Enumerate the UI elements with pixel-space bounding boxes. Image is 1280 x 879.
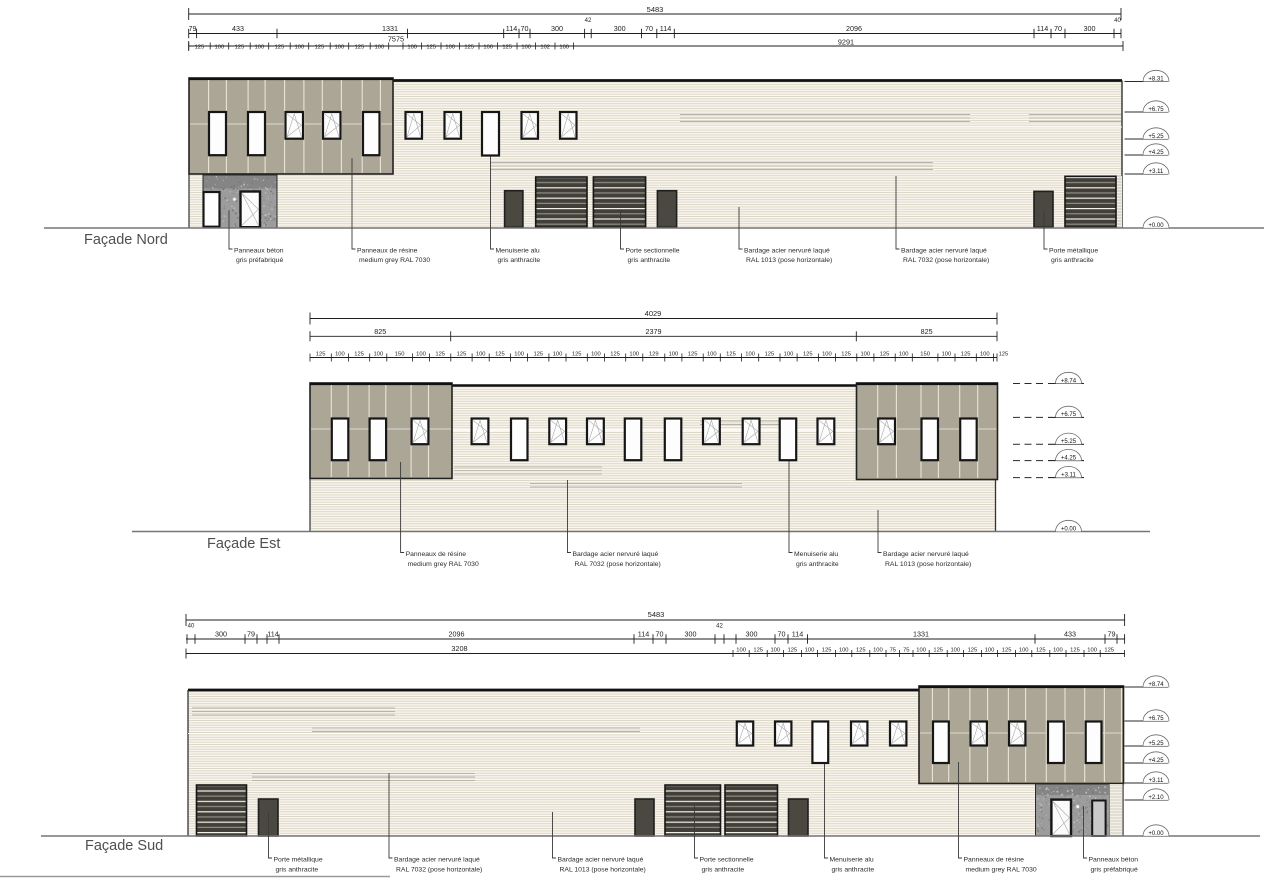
svg-text:70: 70 xyxy=(1054,24,1062,33)
svg-text:5483: 5483 xyxy=(647,5,664,14)
svg-text:125: 125 xyxy=(235,45,245,51)
svg-text:RAL 1013 (pose horizontale): RAL 1013 (pose horizontale) xyxy=(560,867,646,874)
svg-text:114: 114 xyxy=(267,630,278,639)
svg-text:100: 100 xyxy=(559,45,569,51)
svg-text:79: 79 xyxy=(189,24,197,33)
svg-text:100: 100 xyxy=(899,351,909,357)
svg-text:40: 40 xyxy=(188,624,195,630)
svg-text:125: 125 xyxy=(426,45,436,51)
svg-text:125: 125 xyxy=(961,351,971,357)
svg-text:100: 100 xyxy=(553,351,563,357)
svg-text:100: 100 xyxy=(1053,648,1063,654)
svg-text:79: 79 xyxy=(247,630,255,639)
svg-text:125: 125 xyxy=(753,648,763,654)
svg-text:+0.00: +0.00 xyxy=(1148,831,1164,837)
svg-text:125: 125 xyxy=(968,648,978,654)
svg-text:gris anthracite: gris anthracite xyxy=(276,867,319,874)
svg-text:125: 125 xyxy=(495,351,505,357)
svg-text:125: 125 xyxy=(502,45,512,51)
svg-text:100: 100 xyxy=(416,351,426,357)
svg-text:100: 100 xyxy=(591,351,601,357)
svg-text:300: 300 xyxy=(614,24,626,33)
svg-text:433: 433 xyxy=(1064,630,1076,639)
svg-text:100: 100 xyxy=(215,45,225,51)
svg-text:70: 70 xyxy=(778,630,786,639)
svg-text:1331: 1331 xyxy=(913,630,929,639)
svg-text:100: 100 xyxy=(770,648,780,654)
svg-text:Porte sectionnelle: Porte sectionnelle xyxy=(626,248,680,255)
svg-text:+6.75: +6.75 xyxy=(1148,107,1164,113)
svg-text:RAL 7032 (pose horizontale): RAL 7032 (pose horizontale) xyxy=(396,867,482,874)
svg-text:100: 100 xyxy=(255,45,265,51)
svg-text:150: 150 xyxy=(395,351,405,357)
svg-text:70: 70 xyxy=(656,630,664,639)
svg-text:102: 102 xyxy=(540,45,550,51)
svg-text:42: 42 xyxy=(716,624,723,630)
svg-text:gris préfabriqué: gris préfabriqué xyxy=(1091,867,1138,874)
svg-text:100: 100 xyxy=(980,351,990,357)
svg-text:42: 42 xyxy=(585,18,592,24)
svg-text:2096: 2096 xyxy=(449,630,465,639)
svg-text:100: 100 xyxy=(805,648,815,654)
svg-text:100: 100 xyxy=(950,648,960,654)
svg-text:Porte sectionnelle: Porte sectionnelle xyxy=(700,857,754,864)
svg-text:70: 70 xyxy=(521,24,529,33)
svg-text:125: 125 xyxy=(1036,648,1046,654)
svg-text:gris anthracite: gris anthracite xyxy=(796,561,839,568)
svg-text:Façade Nord: Façade Nord xyxy=(84,232,168,248)
svg-text:Façade Sud: Façade Sud xyxy=(85,838,163,854)
svg-text:100: 100 xyxy=(745,351,755,357)
svg-text:100: 100 xyxy=(335,45,345,51)
svg-text:+5.25: +5.25 xyxy=(1148,741,1164,747)
svg-text:100: 100 xyxy=(295,45,305,51)
svg-text:100: 100 xyxy=(629,351,639,357)
svg-text:125: 125 xyxy=(195,45,205,51)
svg-text:Bardage acier nervuré laqué: Bardage acier nervuré laqué xyxy=(394,857,480,864)
svg-text:Panneaux béton: Panneaux béton xyxy=(1089,857,1139,864)
svg-text:Bardage acier nervuré laqué: Bardage acier nervuré laqué xyxy=(901,248,987,255)
svg-text:100: 100 xyxy=(476,351,486,357)
svg-text:2096: 2096 xyxy=(846,24,862,33)
svg-text:40: 40 xyxy=(1114,18,1121,24)
svg-text:100: 100 xyxy=(873,648,883,654)
svg-text:Bardage acier nervuré laqué: Bardage acier nervuré laqué xyxy=(558,857,644,864)
svg-text:129: 129 xyxy=(649,351,659,357)
svg-text:Bardage acier nervuré laqué: Bardage acier nervuré laqué xyxy=(744,248,830,255)
svg-text:825: 825 xyxy=(921,327,933,336)
svg-text:Panneaux de résine: Panneaux de résine xyxy=(406,551,467,558)
svg-text:gris anthracite: gris anthracite xyxy=(498,257,541,264)
svg-text:100: 100 xyxy=(985,648,995,654)
svg-text:+4.25: +4.25 xyxy=(1148,758,1164,764)
svg-text:gris anthracite: gris anthracite xyxy=(832,867,875,874)
svg-text:Menuiserie alu: Menuiserie alu xyxy=(496,248,540,255)
svg-text:114: 114 xyxy=(792,630,803,639)
svg-text:114: 114 xyxy=(506,24,517,33)
svg-text:100: 100 xyxy=(707,351,717,357)
svg-text:433: 433 xyxy=(232,24,244,33)
svg-text:125: 125 xyxy=(765,351,775,357)
svg-text:114: 114 xyxy=(638,630,649,639)
svg-text:+6.75: +6.75 xyxy=(1061,412,1077,418)
svg-text:100: 100 xyxy=(373,351,383,357)
svg-text:gris anthracite: gris anthracite xyxy=(1051,257,1094,264)
svg-text:150: 150 xyxy=(920,351,930,357)
svg-text:114: 114 xyxy=(660,24,671,33)
svg-text:+3.11: +3.11 xyxy=(1149,778,1164,784)
svg-text:125: 125 xyxy=(880,351,890,357)
svg-text:125: 125 xyxy=(788,648,798,654)
svg-text:RAL 1013 (pose horizontale): RAL 1013 (pose horizontale) xyxy=(885,561,971,568)
svg-text:300: 300 xyxy=(551,24,563,33)
svg-text:+5.25: +5.25 xyxy=(1148,134,1164,140)
svg-text:125: 125 xyxy=(856,648,866,654)
svg-text:300: 300 xyxy=(685,630,697,639)
svg-text:79: 79 xyxy=(1108,630,1116,639)
svg-text:125: 125 xyxy=(355,45,365,51)
svg-text:+4.25: +4.25 xyxy=(1148,150,1164,156)
svg-text:3208: 3208 xyxy=(451,644,467,653)
svg-text:Porte métallique: Porte métallique xyxy=(274,857,323,864)
svg-text:125: 125 xyxy=(435,351,445,357)
svg-text:Bardage acier nervuré laqué: Bardage acier nervuré laqué xyxy=(883,551,969,558)
svg-text:gris anthracite: gris anthracite xyxy=(628,257,671,264)
svg-text:100: 100 xyxy=(784,351,794,357)
svg-text:125: 125 xyxy=(315,45,325,51)
svg-text:+8.74: +8.74 xyxy=(1061,378,1077,384)
svg-text:Panneaux de résine: Panneaux de résine xyxy=(357,248,418,255)
svg-text:125: 125 xyxy=(822,648,832,654)
svg-text:medium grey RAL 7030: medium grey RAL 7030 xyxy=(966,867,1037,874)
svg-text:100: 100 xyxy=(822,351,832,357)
svg-text:+0.00: +0.00 xyxy=(1148,223,1164,229)
svg-text:+8.74: +8.74 xyxy=(1148,682,1164,688)
svg-text:100: 100 xyxy=(839,648,849,654)
svg-text:+8.31: +8.31 xyxy=(1148,76,1164,82)
svg-text:+3.11: +3.11 xyxy=(1061,472,1076,478)
svg-text:100: 100 xyxy=(445,45,455,51)
svg-text:300: 300 xyxy=(746,630,758,639)
svg-text:100: 100 xyxy=(514,351,524,357)
svg-text:gris anthracite: gris anthracite xyxy=(702,867,745,874)
svg-text:100: 100 xyxy=(375,45,385,51)
svg-text:gris préfabriqué: gris préfabriqué xyxy=(236,257,283,264)
svg-text:100: 100 xyxy=(942,351,952,357)
svg-text:125: 125 xyxy=(1070,648,1080,654)
svg-text:125: 125 xyxy=(803,351,813,357)
svg-text:RAL 7032 (pose horizontale): RAL 7032 (pose horizontale) xyxy=(575,561,661,568)
svg-text:125: 125 xyxy=(572,351,582,357)
svg-text:125: 125 xyxy=(841,351,851,357)
svg-text:70: 70 xyxy=(645,24,653,33)
svg-text:125: 125 xyxy=(275,45,285,51)
svg-text:100: 100 xyxy=(335,351,345,357)
svg-text:125: 125 xyxy=(457,351,467,357)
svg-text:7575: 7575 xyxy=(388,35,404,44)
svg-text:RAL 1013 (pose horizontale): RAL 1013 (pose horizontale) xyxy=(746,257,832,264)
svg-text:100: 100 xyxy=(483,45,493,51)
svg-text:125: 125 xyxy=(726,351,736,357)
svg-text:100: 100 xyxy=(407,45,417,51)
svg-text:+5.25: +5.25 xyxy=(1061,439,1077,445)
svg-text:2379: 2379 xyxy=(646,327,662,336)
svg-text:75: 75 xyxy=(903,648,909,654)
svg-text:825: 825 xyxy=(374,327,386,336)
svg-text:+3.11: +3.11 xyxy=(1149,169,1164,175)
svg-text:100: 100 xyxy=(1087,648,1097,654)
svg-text:100: 100 xyxy=(916,648,926,654)
svg-text:medium grey RAL 7030: medium grey RAL 7030 xyxy=(408,561,479,568)
svg-text:125: 125 xyxy=(316,351,326,357)
svg-text:125: 125 xyxy=(1002,648,1012,654)
svg-text:Menuiserie alu: Menuiserie alu xyxy=(794,551,838,558)
svg-text:75: 75 xyxy=(890,648,896,654)
svg-text:Menuiserie alu: Menuiserie alu xyxy=(830,857,874,864)
svg-text:+6.75: +6.75 xyxy=(1148,716,1164,722)
svg-text:100: 100 xyxy=(521,45,531,51)
svg-text:125: 125 xyxy=(610,351,620,357)
svg-text:1331: 1331 xyxy=(382,24,398,33)
svg-text:125: 125 xyxy=(688,351,698,357)
svg-text:100: 100 xyxy=(860,351,870,357)
svg-text:Façade Est: Façade Est xyxy=(207,536,280,552)
svg-text:100: 100 xyxy=(1019,648,1029,654)
svg-text:4029: 4029 xyxy=(645,309,662,318)
svg-text:Panneaux béton: Panneaux béton xyxy=(234,248,284,255)
svg-text:RAL 7032 (pose horizontale): RAL 7032 (pose horizontale) xyxy=(903,257,989,264)
svg-text:125: 125 xyxy=(933,648,943,654)
svg-text:9291: 9291 xyxy=(838,38,854,47)
svg-text:medium grey RAL 7030: medium grey RAL 7030 xyxy=(359,257,430,264)
svg-text:+4.25: +4.25 xyxy=(1061,455,1077,461)
svg-text:125: 125 xyxy=(999,351,1009,357)
svg-text:Bardage acier nervuré laqué: Bardage acier nervuré laqué xyxy=(573,551,659,558)
svg-text:+2.10: +2.10 xyxy=(1148,795,1164,801)
svg-text:Porte métallique: Porte métallique xyxy=(1049,248,1098,255)
svg-text:300: 300 xyxy=(1084,24,1096,33)
svg-text:Panneaux de résine: Panneaux de résine xyxy=(964,857,1025,864)
svg-text:125: 125 xyxy=(533,351,543,357)
svg-text:+0.00: +0.00 xyxy=(1061,526,1077,532)
svg-text:125: 125 xyxy=(464,45,474,51)
svg-text:100: 100 xyxy=(669,351,679,357)
svg-text:300: 300 xyxy=(215,630,227,639)
svg-text:125: 125 xyxy=(354,351,364,357)
svg-text:5483: 5483 xyxy=(648,610,665,619)
svg-text:125: 125 xyxy=(1104,648,1114,654)
svg-text:100: 100 xyxy=(736,648,746,654)
svg-text:114: 114 xyxy=(1037,24,1048,33)
